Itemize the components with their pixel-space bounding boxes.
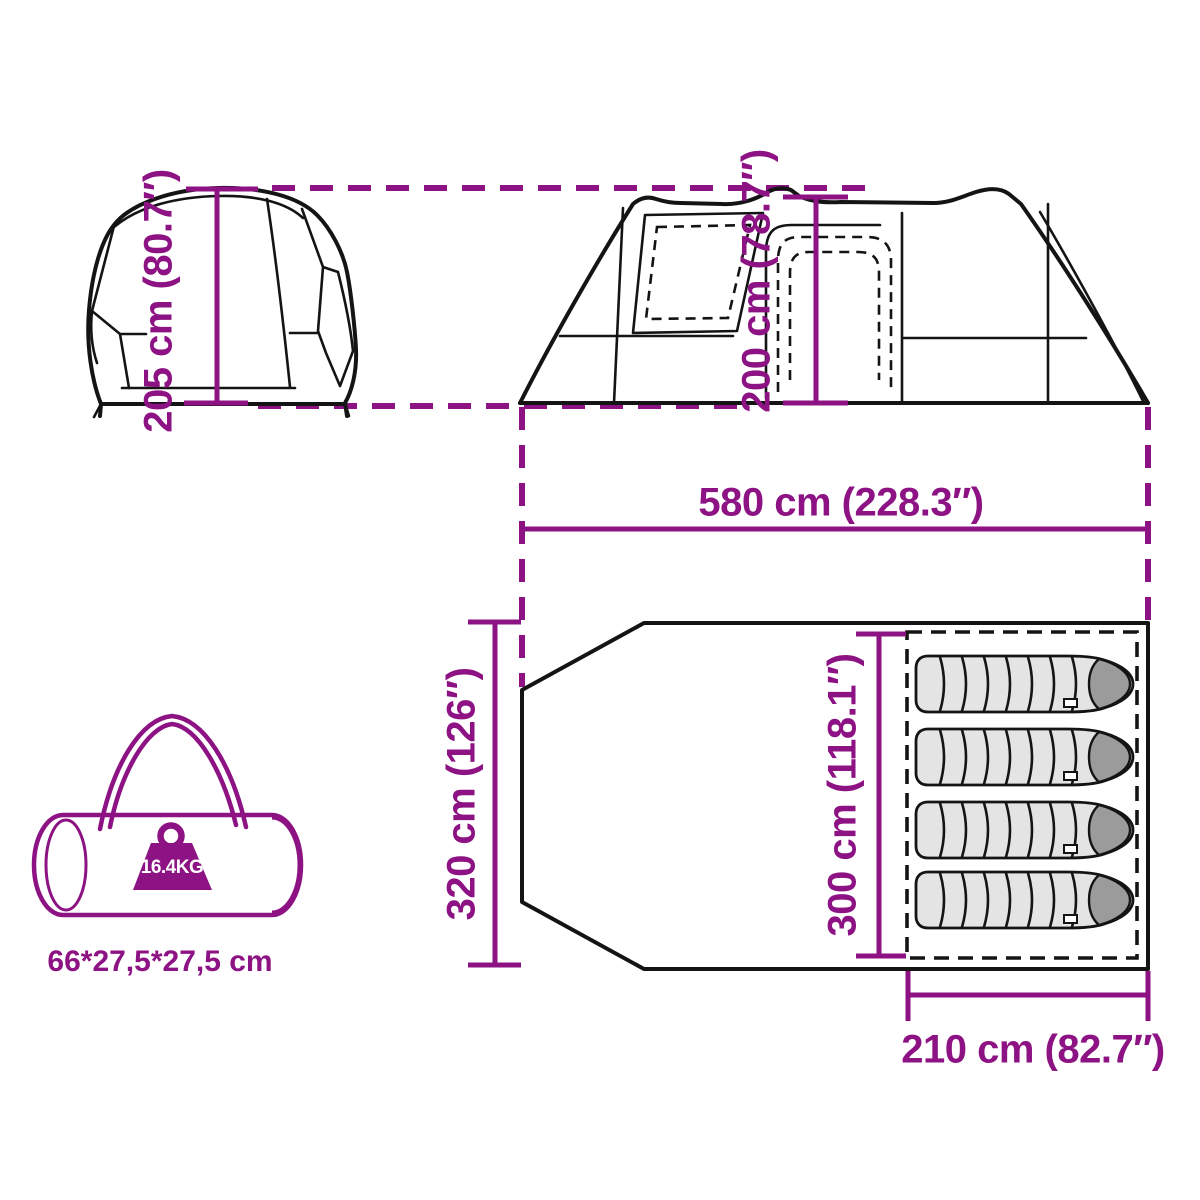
- side-door: [766, 225, 891, 398]
- tent-front-view: [88, 188, 356, 417]
- sleeping-bag-icon: [916, 872, 1133, 928]
- guide-lines: [258, 188, 1148, 687]
- side-height-label: 200 cm (78.7″): [735, 149, 780, 412]
- tent-dimensions-diagram: 205 cm (80.7″) 200 cm (78.7″) 580 cm (22…: [0, 0, 1200, 1200]
- carry-bag-handle: [100, 716, 246, 829]
- dimension-sleeping-length: [908, 971, 1148, 1021]
- dimension-side-height: [783, 197, 848, 403]
- tent-side-view: [520, 188, 1148, 403]
- front-height-label: 205 cm (80.7″): [137, 169, 182, 432]
- bag-weight-label: 16.4KG: [141, 857, 203, 879]
- sleeping-bag-icon: [916, 729, 1133, 785]
- dimension-front-height: [184, 189, 258, 403]
- sleeping-width-label: 300 cm (118.1″): [821, 654, 866, 937]
- floor-width-label: 320 cm (126″): [440, 668, 485, 921]
- bag-size-label: 66*27,5*27,5 cm: [47, 945, 272, 979]
- sleeping-length-label: 210 cm (82.7″): [901, 1028, 1164, 1073]
- carry-bag: [34, 716, 301, 915]
- sleeping-bag-icon: [916, 656, 1133, 712]
- tent-length-label: 580 cm (228.3″): [698, 481, 983, 526]
- carry-bag-endcap: [46, 820, 86, 910]
- sleeping-bag-icon: [916, 802, 1133, 858]
